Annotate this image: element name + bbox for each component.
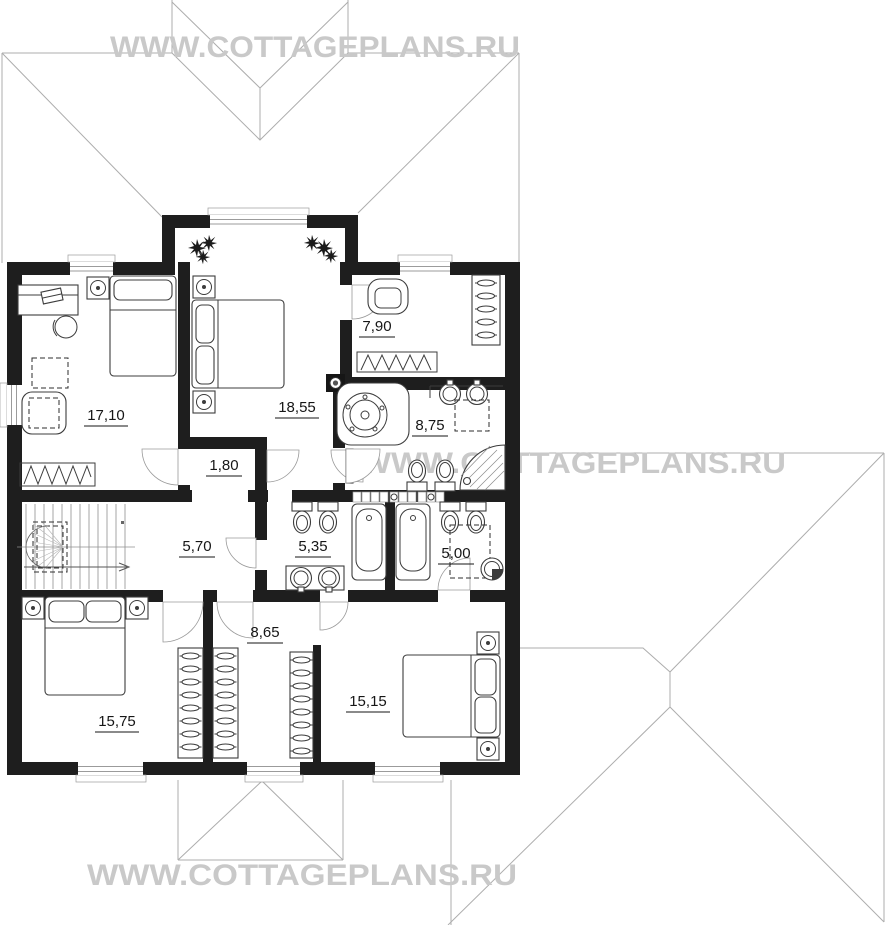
room-area-label-bathroom-middle: 5,35	[298, 538, 327, 555]
door-bedroom-study	[142, 449, 178, 485]
window-left-wall	[7, 385, 22, 425]
nightstand-lamp	[22, 597, 44, 619]
nightstand-lamp	[87, 277, 109, 299]
pillow	[475, 659, 496, 695]
door-corridor-lobby	[267, 450, 299, 482]
window-bottom-right	[375, 762, 440, 775]
room-area-label-master-bedroom: 18,55	[278, 399, 316, 416]
radiator	[357, 352, 437, 372]
furniture-bedroom-left	[22, 597, 148, 695]
toilet	[292, 502, 312, 533]
nightstand-lamp	[477, 632, 499, 654]
room-area-label-stair-hall: 5,70	[182, 538, 211, 555]
window-bottom-left	[78, 762, 143, 775]
door-wardrobe-hallway	[217, 602, 253, 638]
second-floor-plan: WWW.COTTAGEPLANS.RU WWW.COTTAGEPLANS.RU …	[0, 0, 887, 925]
toilet	[435, 460, 455, 491]
nightstand-lamp	[193, 276, 215, 298]
toilet	[466, 502, 486, 533]
dressing-table	[32, 358, 68, 388]
furniture-wardrobe-hallway	[178, 648, 313, 758]
door-bedroom-left	[163, 602, 203, 642]
door-bedroom-right	[320, 602, 348, 630]
nightstand-lamp	[193, 391, 215, 413]
toilet	[407, 460, 427, 491]
bathtub	[396, 504, 430, 580]
furniture-master-bedroom	[188, 235, 345, 413]
window-bottom-center	[247, 762, 300, 775]
room-area-label-bedroom-right: 15,15	[349, 693, 387, 710]
stair-direction-arrow	[24, 563, 129, 571]
pillow	[196, 346, 214, 384]
room-area-label-bedroom-left: 15,75	[98, 713, 136, 730]
laundry-box	[455, 400, 489, 431]
room-area-label-wardrobe-hallway: 8,65	[250, 624, 279, 641]
pillow	[114, 280, 172, 300]
desk-chair	[55, 316, 77, 338]
armchair	[368, 279, 408, 314]
door-shower-room	[438, 558, 470, 590]
wardrobe-rail	[178, 648, 203, 758]
floor-plan-page: WWW.COTTAGEPLANS.RU WWW.COTTAGEPLANS.RU …	[0, 0, 887, 925]
nightstand-lamp	[477, 738, 499, 760]
room-area-label-dressing-room: 7,90	[362, 318, 391, 335]
window-top-center	[210, 215, 307, 228]
pillow	[86, 601, 121, 622]
plant	[188, 235, 217, 264]
furniture-bedroom-right	[403, 632, 500, 760]
plant	[304, 235, 338, 263]
wardrobe-rail	[290, 652, 313, 758]
staircase	[17, 504, 135, 589]
pillow	[475, 697, 496, 733]
furniture-bathroom-master	[337, 380, 505, 502]
room-area-label-bedroom-study: 17,10	[87, 407, 125, 424]
room-area-label-shower-room: 5,00	[441, 545, 470, 562]
window-top-right	[400, 262, 450, 275]
door-bathroom-middle	[226, 538, 256, 568]
room-area-label-corridor: 1,80	[209, 457, 238, 474]
room-area-label-bathroom-master: 8,75	[415, 417, 444, 434]
toilet	[440, 502, 460, 533]
watermark-top: WWW.COTTAGEPLANS.RU	[110, 31, 520, 64]
watermark-bottom: WWW.COTTAGEPLANS.RU	[87, 859, 517, 892]
wardrobe-rail	[213, 648, 238, 758]
pillow	[196, 305, 214, 343]
nightstand-lamp	[126, 597, 148, 619]
pillow	[49, 601, 84, 622]
window-top-left	[70, 262, 113, 275]
bathtub	[352, 504, 386, 580]
toilet	[318, 502, 338, 533]
